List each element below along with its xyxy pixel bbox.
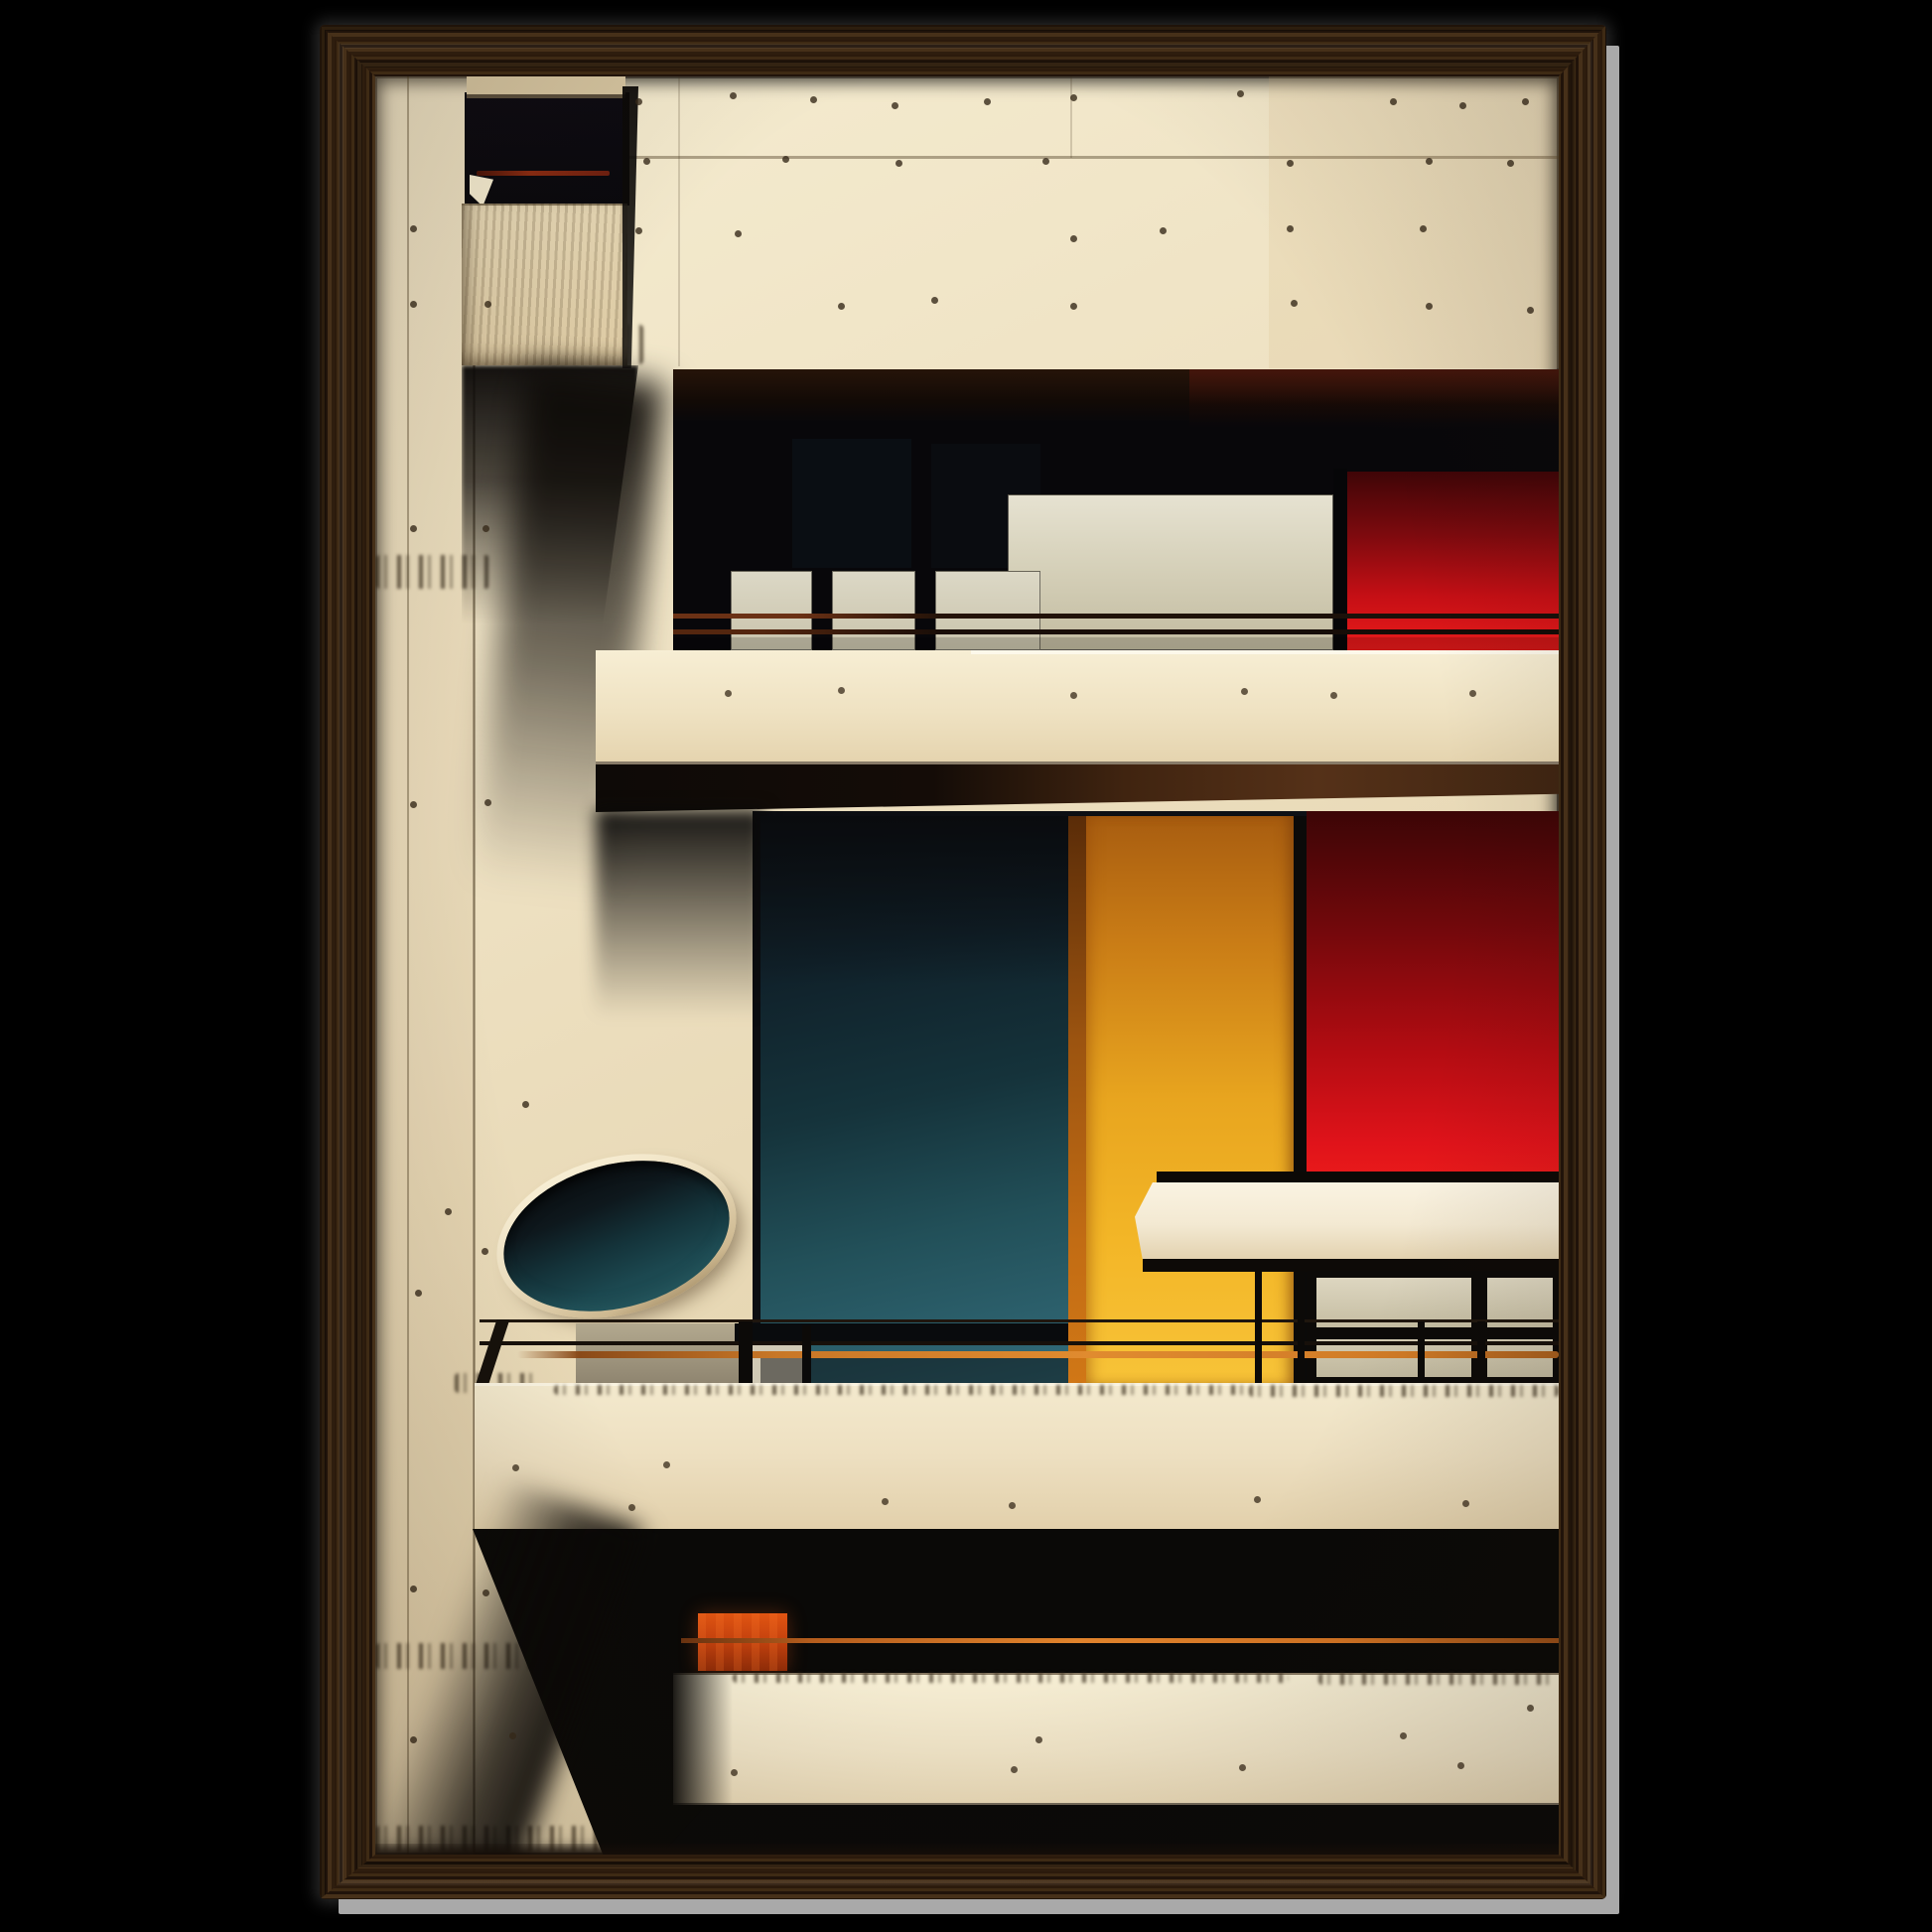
top-left-roof-box — [467, 76, 625, 98]
concrete-seam — [407, 76, 409, 1855]
white-ledge — [1135, 1172, 1559, 1272]
balcony-railing — [673, 629, 1559, 634]
form-tie-dots — [375, 76, 382, 83]
railing-post — [1298, 1271, 1305, 1383]
balcony-railing — [673, 614, 1559, 619]
upper-red-panel — [1347, 472, 1559, 650]
soffit-shadow — [596, 809, 764, 1018]
soffit-underside — [596, 764, 1559, 812]
panel-gap — [1333, 469, 1347, 650]
concrete-wall-tint — [1269, 76, 1559, 368]
lower-window-band — [1307, 1271, 1559, 1383]
teal-panel-shadow — [760, 816, 1068, 985]
yellow-column-lit-edge — [1068, 816, 1086, 1383]
parapet-highlight — [971, 650, 1559, 654]
picture-frame — [320, 25, 1606, 1899]
art-print — [375, 76, 1559, 1855]
porthole-ellipse — [486, 1137, 746, 1334]
left-concrete-pier — [375, 76, 475, 1855]
ledge-top-edge — [1157, 1172, 1559, 1182]
rust-railing — [477, 171, 610, 176]
bottom-floor-band — [673, 1673, 1559, 1805]
orange-handrail-lower — [681, 1638, 1559, 1643]
railing-post — [1418, 1321, 1425, 1383]
concrete-seam — [1070, 76, 1072, 158]
ledge-face — [1135, 1182, 1559, 1259]
railing-shadow — [673, 637, 1559, 650]
recess-soffit-maroon — [1189, 369, 1559, 429]
upper-balcony-recess — [673, 369, 1559, 650]
bottom-edge-vignette — [375, 1844, 1559, 1855]
railing-post — [739, 1321, 753, 1383]
balcony-railing — [480, 1341, 1559, 1345]
parapet-band — [596, 650, 1559, 764]
stain — [733, 1673, 1289, 1683]
orange-handrail — [517, 1351, 1559, 1358]
railing-shadow — [760, 1358, 1068, 1383]
railing-post — [1477, 1321, 1485, 1383]
tall-window-panel — [1008, 494, 1333, 650]
stain — [554, 1385, 1249, 1395]
railing-post — [1255, 1271, 1262, 1383]
bottom-band-shadow — [673, 1673, 733, 1805]
glass-hint — [792, 439, 911, 568]
stain — [1249, 1385, 1559, 1397]
stain — [1318, 1673, 1559, 1685]
weathered-balcony-block — [462, 204, 627, 365]
balcony-railing — [480, 1319, 1559, 1322]
concrete-seam — [678, 76, 680, 366]
lower-parapet — [475, 1383, 1559, 1529]
middle-red-panel — [1307, 811, 1559, 1180]
yellow-column — [1086, 816, 1294, 1383]
screenshot: { "page": { "background": "#000000" }, "… — [0, 0, 1932, 1932]
